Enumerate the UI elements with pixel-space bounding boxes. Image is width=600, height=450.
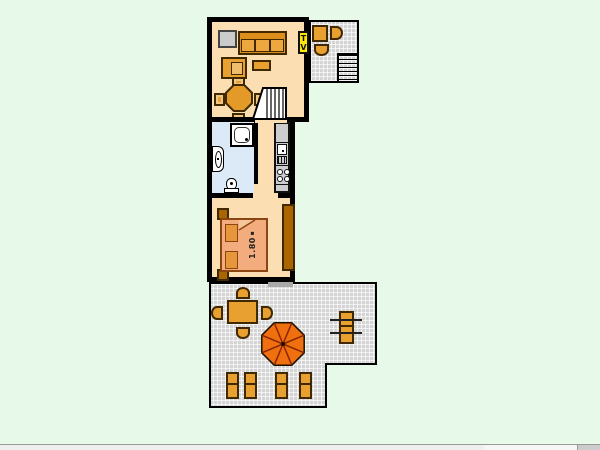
tv-label: TV [298,31,309,54]
stove-burner [277,176,283,182]
stove-burner [284,176,290,182]
sun-lounger [339,311,354,344]
cabinet [218,30,237,48]
lounger-fold-line [341,325,352,327]
chair-pad [236,81,241,83]
sun-lounger [275,372,288,399]
basin-drain [217,158,219,160]
sofa-cushion [255,39,269,52]
terrace-chair [236,327,250,339]
lounger-fold-line [277,383,286,385]
bedroom: 1.80 [207,193,295,282]
terrace-chair [261,306,273,320]
stairs-icon [252,87,288,121]
floor-plan: TV [0,0,600,450]
balcony [309,20,359,83]
bed-size-text: 1.80 [248,237,257,259]
shower-drain [245,138,248,141]
balcony-chair [330,26,343,40]
shower-tray [234,127,250,143]
wardrobe [282,204,295,271]
sink-drain [282,150,284,152]
sofa-cushion [241,39,255,52]
horizontal-scrollbar[interactable] [0,444,600,450]
outdoor-stairs-icon [337,53,357,81]
sofa-seats [241,39,284,52]
dining-table [227,86,251,110]
terrace-door-threshold [268,282,293,287]
dining-chair [214,93,225,106]
terrace-chair [211,306,223,320]
scrollbar-corner [577,445,600,450]
lounger-fold-line [301,383,310,385]
sink-drainer [277,156,287,164]
counter-divider [276,184,288,185]
door-opening [253,193,278,198]
terrace-chair [236,287,250,299]
washbasin [212,146,224,172]
parasol-icon [258,319,308,369]
kitchen-sink [277,144,287,155]
toilet-drain [230,182,233,185]
lounger-rail [330,319,362,321]
scrollbar-track-segment[interactable] [484,445,577,450]
toilet [224,178,239,193]
bath-kitchen-level [207,117,295,198]
lounger-fold-line [246,383,255,385]
sofa-cushion [270,39,284,52]
chair-pad [218,97,221,102]
stove-burner [284,169,290,175]
page: { "floor_plan": { "living_room": { "tv_l… [0,0,600,450]
bathroom-wall [254,122,258,184]
coffee-table [252,60,271,71]
sofa [238,31,287,55]
stove-burner [277,169,283,175]
sun-lounger [226,372,239,399]
counter-divider [276,165,288,166]
shower [230,123,254,147]
armchair [221,57,247,79]
sun-lounger [299,372,312,399]
sun-lounger [244,372,257,399]
balcony-table [312,25,328,42]
balcony-chair [314,44,329,56]
bed-size-label: 1.80 [244,220,260,270]
kitchen-counter [274,122,290,193]
lounger-rail [330,332,362,334]
lounger-fold-line [228,383,237,385]
armchair-cushion [231,62,243,75]
meter-square-icon [251,232,254,235]
terrace [209,282,378,409]
counter-divider [276,142,288,143]
terrace-table [227,300,258,324]
double-bed: 1.80 [220,218,268,272]
